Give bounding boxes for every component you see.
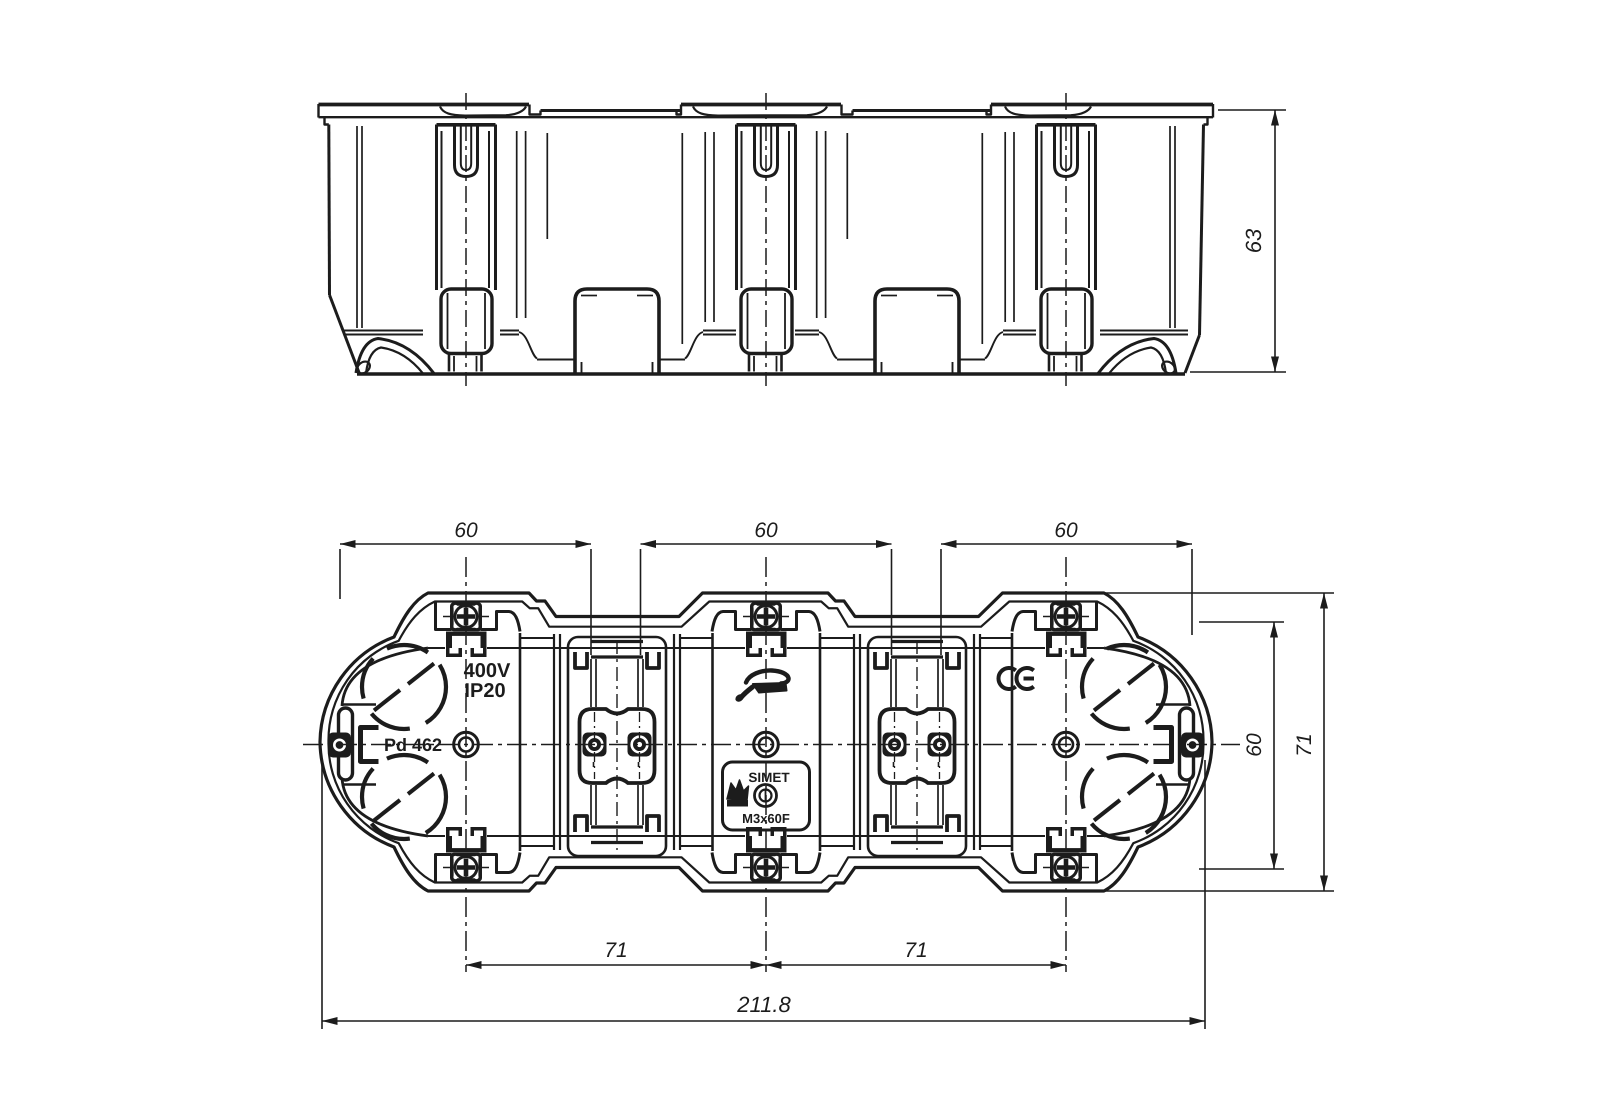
svg-text:60: 60 — [754, 519, 778, 542]
svg-text:71: 71 — [1293, 733, 1316, 756]
svg-text:63: 63 — [1241, 228, 1266, 253]
svg-text:SIMET: SIMET — [748, 770, 790, 785]
svg-text:400V: 400V — [464, 660, 511, 682]
svg-text:IP20: IP20 — [464, 680, 505, 702]
svg-text:71: 71 — [604, 939, 627, 962]
svg-text:71: 71 — [904, 939, 927, 962]
svg-text:60: 60 — [1054, 519, 1078, 542]
svg-text:60: 60 — [454, 519, 478, 542]
svg-text:60: 60 — [1243, 733, 1266, 757]
svg-text:211.8: 211.8 — [736, 992, 791, 1017]
